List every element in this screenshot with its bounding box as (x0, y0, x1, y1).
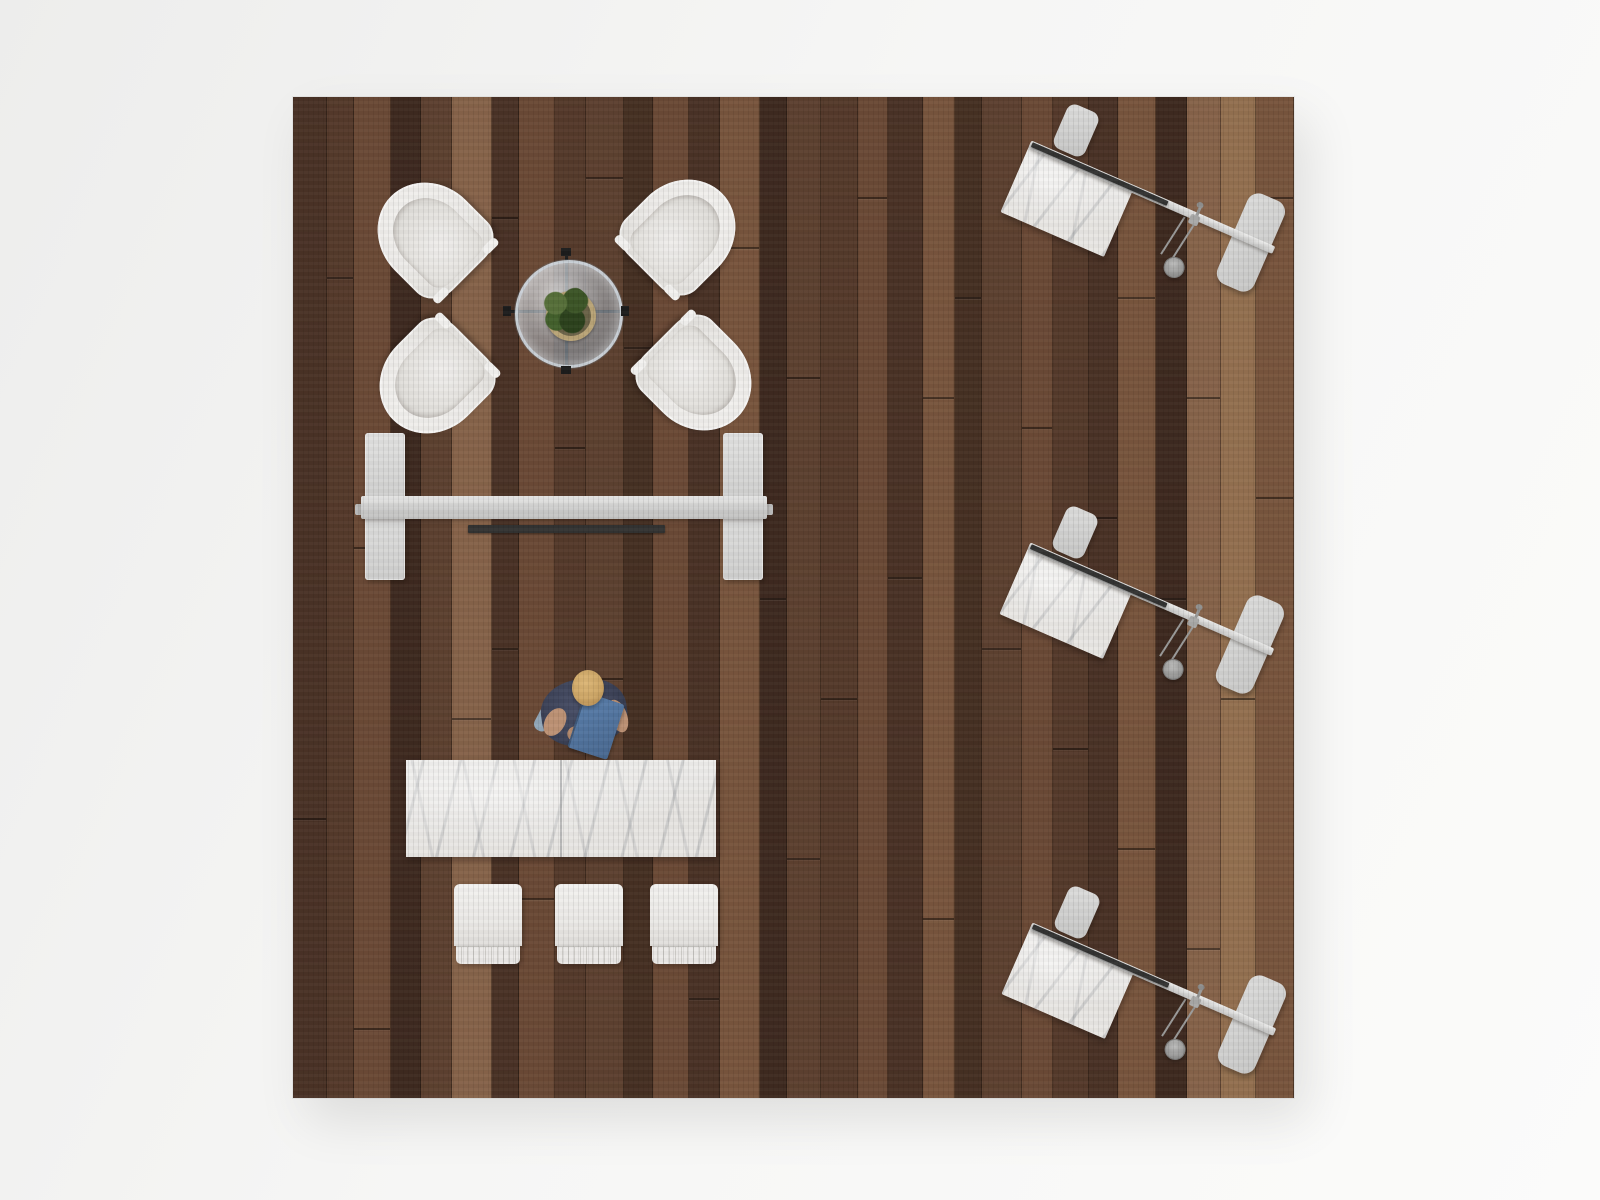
stool-pleated-edge (557, 946, 621, 964)
plank-seam (452, 718, 491, 720)
plank-seam (760, 598, 786, 600)
floor-plank (327, 97, 354, 1098)
plank-seam (327, 277, 353, 279)
floor-plank (858, 97, 887, 1098)
tabletop-seam (560, 760, 562, 857)
stool-cushion (555, 884, 623, 946)
plank-seam (1187, 397, 1220, 399)
coffee-table[interactable] (503, 248, 629, 374)
floor-plank (955, 97, 982, 1098)
table-leg-west (503, 306, 511, 316)
table-leg-north (561, 248, 571, 256)
stool-pleated-edge (652, 946, 716, 964)
plank-seam (923, 397, 953, 399)
plank-seam (1256, 497, 1293, 499)
lamp-shade (1160, 254, 1188, 282)
plank-seam (293, 818, 326, 820)
floor-plank (293, 97, 327, 1098)
plank-seam (519, 898, 554, 900)
plank-seam (888, 577, 923, 579)
floor-plank (888, 97, 924, 1098)
lamp-shade (1159, 656, 1187, 684)
person-head (572, 670, 604, 706)
desk-stool (1050, 504, 1100, 562)
plank-seam (1053, 748, 1088, 750)
floor-plank (760, 97, 787, 1098)
dining-stool[interactable] (454, 884, 522, 963)
table-leg-south (561, 366, 571, 374)
wood-floor (293, 97, 1294, 1098)
plank-seam (787, 858, 820, 860)
desk-stool (1052, 884, 1102, 942)
potted-plant (540, 285, 592, 337)
plank-seam (354, 547, 391, 549)
plank-seam (787, 377, 820, 379)
floor-plank (821, 97, 859, 1098)
floor-plank (787, 97, 821, 1098)
dining-table-marble[interactable] (406, 760, 716, 857)
table-leg-east (621, 306, 629, 316)
stool-cushion (650, 884, 718, 946)
stool-cushion (454, 884, 522, 946)
lamp-shade (1161, 1036, 1189, 1064)
stool-pleated-edge (456, 946, 520, 964)
plank-seam (492, 648, 518, 650)
dining-stool[interactable] (650, 884, 718, 963)
plank-seam (955, 297, 981, 299)
plank-seam (492, 217, 518, 219)
plank-seam (354, 1028, 391, 1030)
plank-seam (821, 698, 858, 700)
room-top-view: { "scene": { "floor": {"left": 293, "top… (0, 0, 1600, 1200)
desk-stool (1051, 102, 1101, 160)
plank-seam (689, 998, 719, 1000)
dining-stool[interactable] (555, 884, 623, 963)
floor-plank (923, 97, 954, 1098)
plank-seam (858, 197, 886, 199)
plank-seam (1118, 848, 1155, 850)
plank-seam (923, 918, 953, 920)
plank-seam (555, 447, 585, 449)
person-top-view[interactable] (523, 657, 643, 772)
plank-seam (689, 497, 719, 499)
plank-seam (586, 177, 623, 179)
plank-seam (1022, 427, 1052, 429)
